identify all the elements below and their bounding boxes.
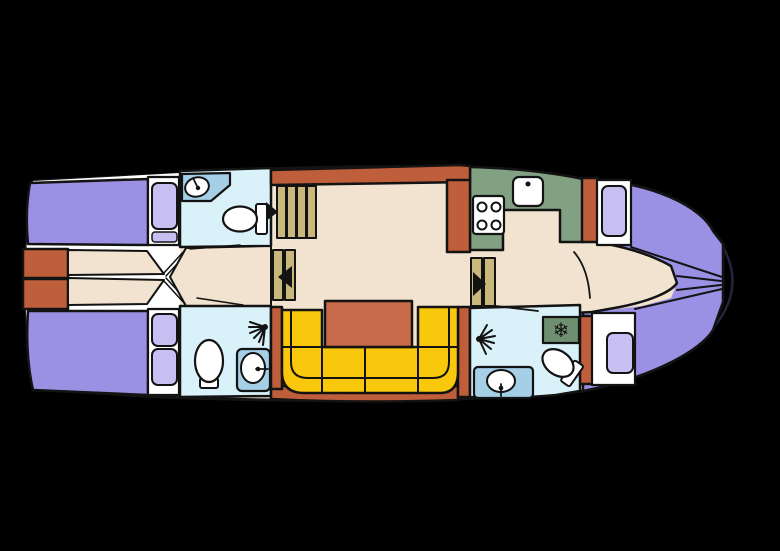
sideboard-cabinet [447,180,470,252]
faucet-icon [499,386,504,391]
aft-berth-top [27,179,148,245]
mid-corridor [170,246,271,306]
deck-strip-left [271,307,282,389]
faucet-icon [196,186,200,190]
aft-corridor-lower [68,278,164,305]
deck-strip-right [458,307,470,397]
faucet-icon [256,367,261,372]
toilet-icon [223,207,257,232]
toilet-icon [195,340,223,382]
stair-tread [277,186,286,238]
stern-step [23,249,68,278]
stair-tread [484,258,495,306]
sink-icon [241,353,265,383]
stairs-icon [273,250,295,300]
pillow-icon [152,232,177,242]
boat-floorplan: ❄ [0,0,780,551]
aft-corridor-upper [68,250,164,275]
shower-head-icon [476,336,482,342]
pillow-icon [152,314,177,346]
boat-floorplan-canvas: ❄ [0,0,780,551]
aft-cabin [23,173,188,396]
shower-head-icon [262,324,268,330]
stair-tread [287,186,296,238]
stern-step [23,279,68,309]
pillow-icon [152,349,177,385]
snowflake-icon: ❄ [553,318,570,342]
table-icon [325,301,412,347]
pillow-icon [607,333,633,373]
deck-strip-top [271,165,470,185]
pillow-icon [152,183,177,229]
aft-head-top [180,168,271,247]
stair-tread [297,186,306,238]
sink-icon [513,177,543,206]
bulkhead-galley [582,178,598,242]
stairs-icon [471,258,495,306]
stair-tread [307,186,316,238]
pillow-icon [602,186,626,236]
faucet-icon [526,182,531,187]
bow-head: ❄ [470,305,584,398]
aft-berth-bottom [27,311,148,395]
aft-head-bottom [180,306,271,397]
